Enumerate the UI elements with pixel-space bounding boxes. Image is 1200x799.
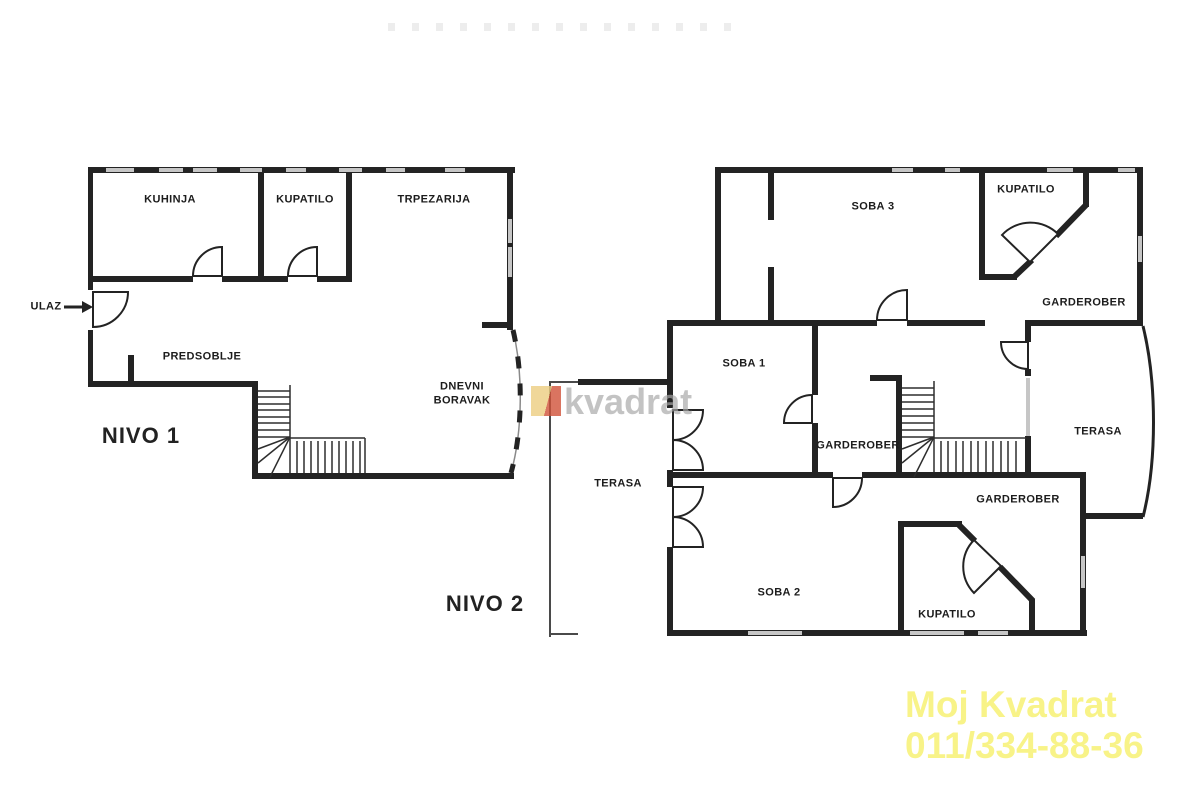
room-label-boravak: BORAVAK [434,395,491,408]
room-label-garderober-lower: GARDEROBER [976,494,1059,507]
level2-diagonal-walls [959,205,1086,601]
kvadrat-logo-square-icon [531,386,561,416]
floorplan-canvas: KUHINJA KUPATILO TRPEZARIJA ULAZ PREDSOB… [0,0,1200,799]
entrance-arrow-icon [64,301,93,313]
room-label-terasa-right: TERASA [1074,426,1122,439]
room-label-kuhinja: KUHINJA [144,194,196,207]
bathroom1-door-arc [288,247,317,276]
room-label-kupatilo-upper: KUPATILO [997,184,1055,197]
kupatilo-upper-door-arc [1002,223,1058,262]
agency-name: Moj Kvadrat [905,684,1144,725]
room-label-kupatilo-1: KUPATILO [276,194,334,207]
agency-branding: Moj Kvadrat 011/334-88-36 [905,684,1144,766]
level1-title: NIVO 1 [102,423,180,449]
room-label-soba3: SOBA 3 [852,201,895,214]
room-label-garderober-middle: GARDEROBER [816,440,899,453]
terrace-right-door-arc [1001,342,1028,369]
kupatilo-lower-door-arc [963,540,1001,593]
kitchen-door-arc [193,247,222,276]
entrance-door-arc [93,292,128,327]
room-label-ulaz: ULAZ [31,301,62,314]
kvadrat-watermark-text: kvadrat [564,381,692,423]
level2-title: NIVO 2 [446,591,524,617]
room-label-terasa-left: TERASA [594,478,642,491]
soba3-door-arc [877,290,907,320]
room-label-garderober-upper: GARDEROBER [1042,297,1125,310]
level1-staircase [258,385,365,477]
agency-phone: 011/334-88-36 [905,725,1144,766]
room-label-dnevni: DNEVNI [440,381,484,394]
room-label-soba1: SOBA 1 [723,358,766,371]
level2-staircase [902,381,1026,477]
level2-terrace-right-curve [1143,326,1154,517]
room-label-kupatilo-lower: KUPATILO [918,609,976,622]
soba2-balcony-door-arcs [673,487,703,547]
room-label-trpezarija: TRPEZARIJA [397,194,470,207]
soba1-door-arc [784,395,812,423]
garderober-middle-door-arc [833,478,862,507]
level1-bay-window [511,330,520,473]
room-label-predsoblje: PREDSOBLJE [163,351,242,364]
level1-doors [93,247,317,327]
room-label-soba2: SOBA 2 [758,587,801,600]
